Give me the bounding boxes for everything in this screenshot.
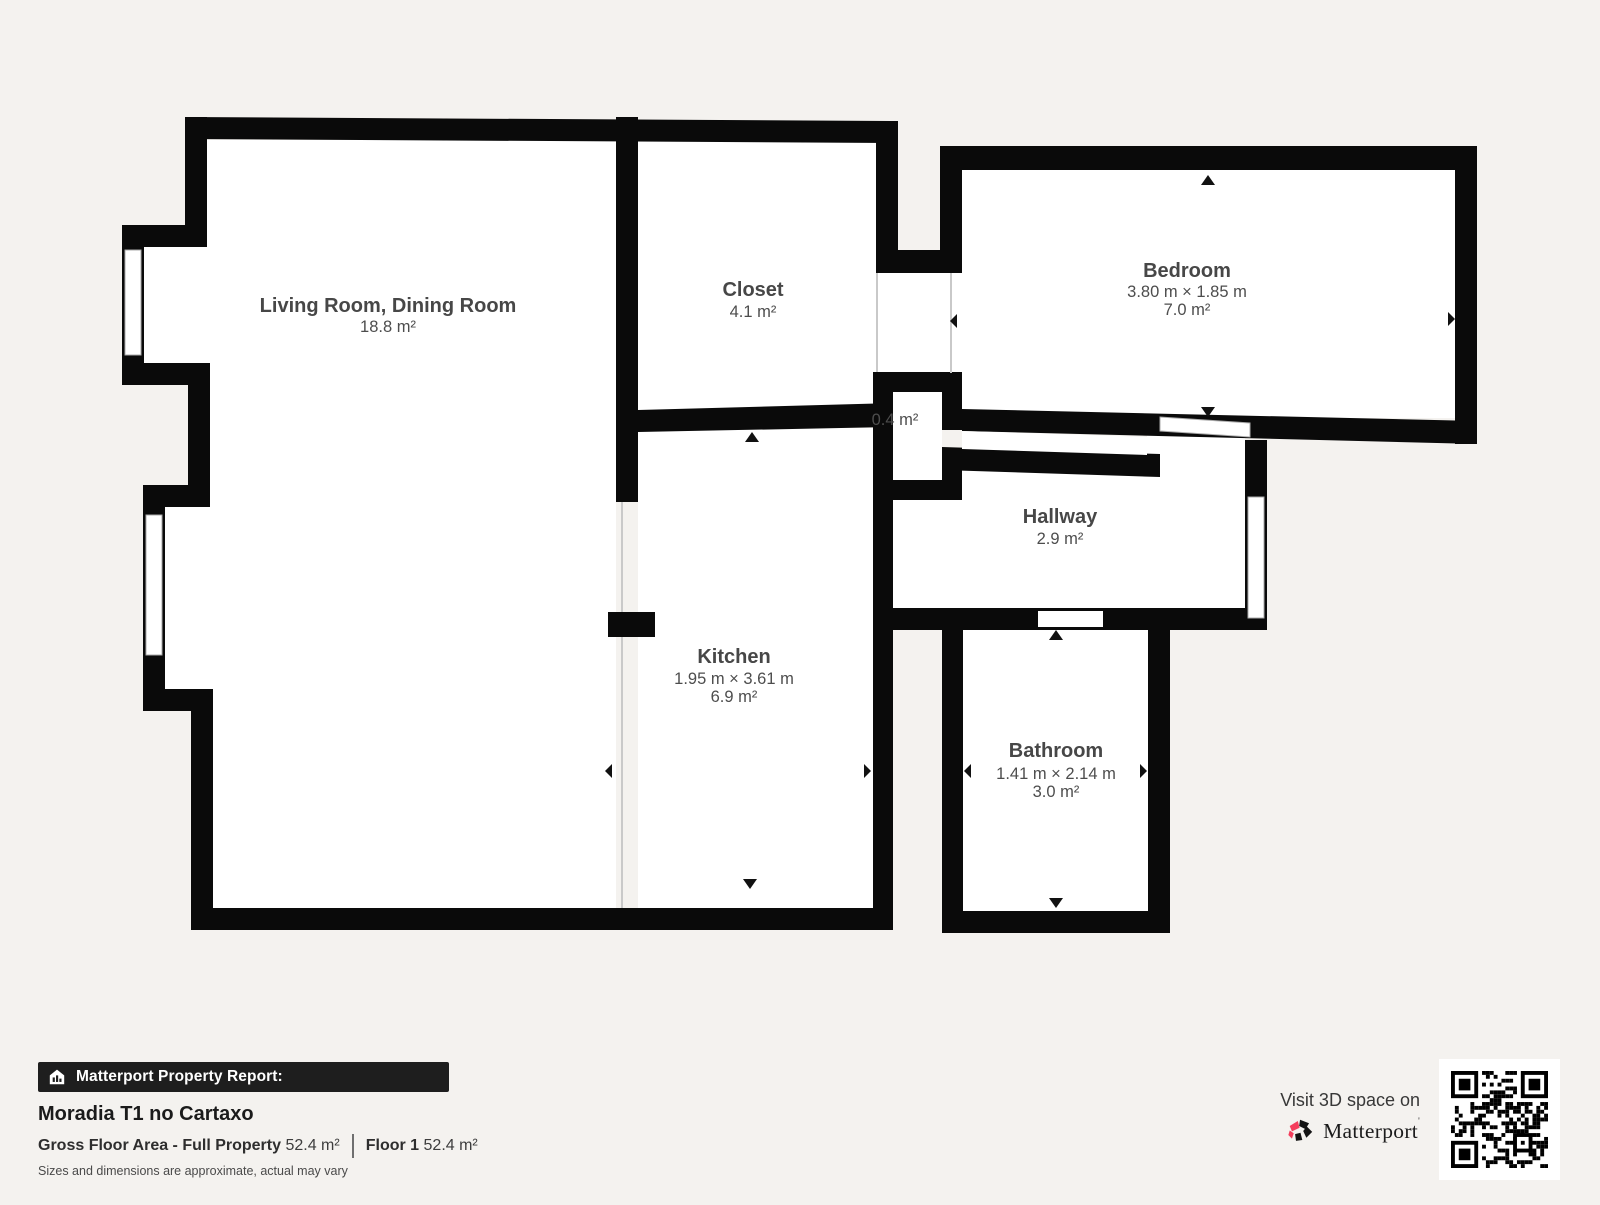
door-opening-bathroom [1038,611,1103,627]
report-header-bar: Matterport Property Report: [38,1062,449,1092]
vestibule-floor [876,273,962,373]
floorplan-svg: Living Room, Dining Room 18.8 m² Closet … [0,0,1600,1200]
floor1-label: Floor 1 [366,1137,419,1155]
floor1-value: 52.4 m² [424,1137,478,1155]
gross-floor-area-label: Gross Floor Area - Full Property [38,1137,281,1155]
stats-divider [352,1134,354,1158]
bedroom-dims: 3.80 m × 1.85 m [1127,283,1247,301]
open-wall-line-kitchen-upper [621,502,623,612]
kitchen-label: Kitchen [697,646,770,668]
closet-label: Closet [722,279,783,301]
living-room-floor [144,140,616,908]
wall-bedroom-top [940,146,1477,170]
wall-divider-living-closet [616,117,638,502]
wall-bedroom-right [1455,146,1477,444]
closet-floor [637,139,877,410]
report-header-text: Matterport Property Report: [76,1068,283,1086]
matterport-wordmark: Matterport' [1323,1116,1420,1144]
bathroom-dims: 1.41 m × 2.14 m [996,765,1116,783]
nook-floor [893,392,942,480]
bedroom-area: 7.0 m² [1164,301,1211,319]
open-wall-line-bedroom [950,273,952,373]
floorplan-page: Living Room, Dining Room 18.8 m² Closet … [0,0,1600,1200]
wall-kitchen-right [873,403,893,930]
wall-bottom [191,908,893,930]
qr-code [1439,1059,1560,1180]
kitchen-dims: 1.95 m × 3.61 m [674,670,794,688]
nook-area: 0.4 m² [872,411,919,429]
kitchen-floor [638,428,873,908]
property-name: Moradia T1 no Cartaxo [38,1103,254,1126]
gross-floor-area-value: 52.4 m² [285,1137,339,1155]
closet-area: 4.1 m² [730,303,777,321]
living-room-label: Living Room, Dining Room [260,295,517,317]
hallway-area: 2.9 m² [1037,530,1084,548]
house-chart-icon [48,1068,66,1086]
open-wall-line-closet [876,273,878,372]
floor-area-stats: Gross Floor Area - Full Property 52.4 m²… [38,1134,478,1158]
hallway-label: Hallway [1023,506,1098,528]
bathroom-label: Bathroom [1009,740,1103,762]
wall-kitchen-stub [608,612,655,637]
wall-top [185,117,898,143]
disclaimer-text: Sizes and dimensions are approximate, ac… [38,1164,348,1178]
door-opening-entrance [1248,497,1264,618]
living-room-area: 18.8 m² [360,318,416,336]
matterport-pinwheel-icon [1287,1117,1314,1144]
wall-bedroom-left [940,146,962,262]
wall-left-5 [191,689,213,930]
bedroom-label: Bedroom [1143,260,1231,282]
wall-bathroom-right [1148,628,1170,933]
matterport-logo: Matterport' [1140,1116,1420,1144]
wall-bathroom-left [942,628,963,933]
visit-3d-text: Visit 3D space on [1140,1090,1420,1111]
bathroom-area: 3.0 m² [1033,783,1080,801]
qr-code-pattern [1451,1071,1548,1168]
open-wall-line-kitchen-lower [621,637,623,908]
window-icon-living-bottom [146,515,162,655]
window-icon-living-top [125,250,141,355]
wall-nook-right-top [942,390,962,430]
kitchen-area: 6.9 m² [711,688,758,706]
wall-bathroom-bottom [942,911,1170,933]
